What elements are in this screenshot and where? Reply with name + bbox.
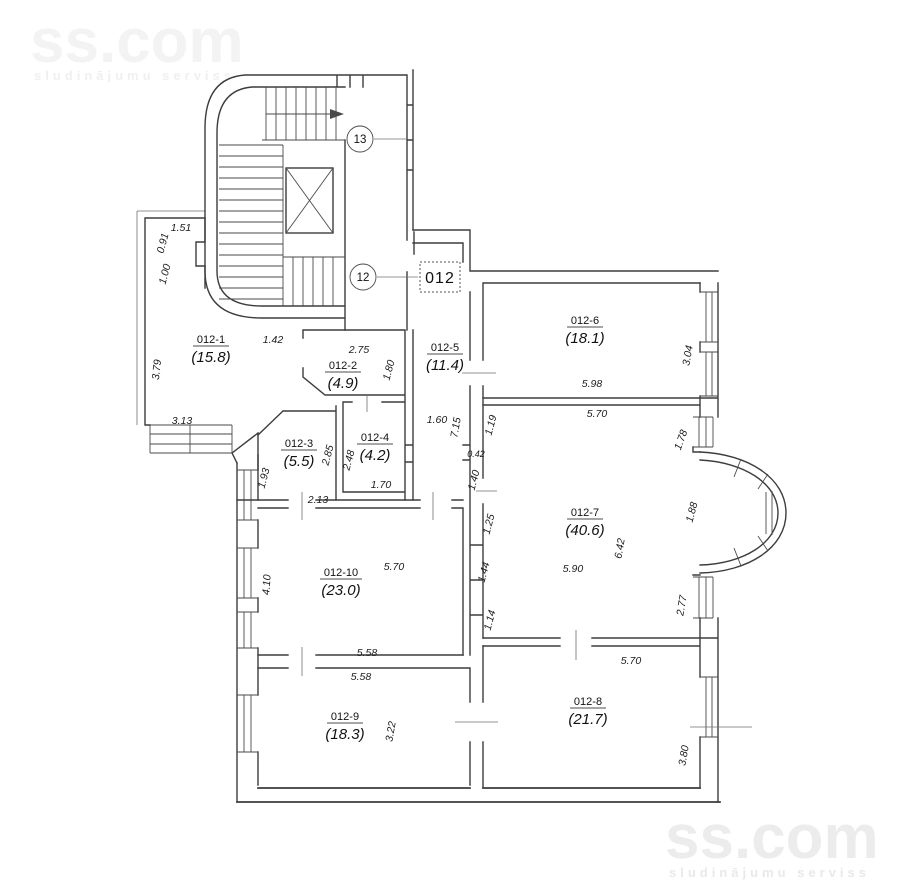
dimension-label: 3.13 bbox=[172, 415, 193, 427]
staircase bbox=[205, 70, 414, 330]
room-area: (15.8) bbox=[191, 349, 230, 366]
dimension-label: 3.22 bbox=[383, 720, 398, 742]
elevator-shaft bbox=[286, 168, 333, 233]
unit-number: 012 bbox=[425, 270, 455, 287]
room-area: (4.2) bbox=[360, 447, 391, 464]
dimension-label: 6.42 bbox=[612, 537, 627, 559]
dimension-label: 1.42 bbox=[263, 334, 284, 346]
floor-plan: ss.com sludinājumu serviss ss.com sludin… bbox=[0, 0, 910, 887]
window bbox=[150, 425, 232, 453]
floor-13-text: 13 bbox=[354, 134, 367, 146]
dimension-label: 5.70 bbox=[621, 655, 642, 667]
stair-treads bbox=[219, 87, 345, 306]
elevator-cross bbox=[286, 168, 333, 233]
room-id: 012-5 bbox=[431, 342, 459, 354]
room-area: (18.3) bbox=[325, 726, 364, 743]
room-id: 012-8 bbox=[574, 696, 602, 708]
dimension-label: 2.75 bbox=[348, 344, 370, 356]
dimension-label: 1.44 bbox=[476, 561, 493, 584]
floor-12-text: 12 bbox=[357, 272, 370, 284]
room-id: 012-2 bbox=[329, 360, 357, 372]
outer-wall-bottom bbox=[237, 788, 720, 802]
watermark-tagline: sludinājumu serviss bbox=[669, 865, 870, 880]
dimension-label: 5.98 bbox=[582, 378, 603, 390]
room-id: 012-9 bbox=[331, 711, 359, 723]
dimension-label: 5.58 bbox=[351, 671, 372, 683]
window bbox=[237, 470, 258, 752]
room-id: 012-7 bbox=[571, 507, 599, 519]
room-area: (4.9) bbox=[328, 375, 359, 392]
room-id: 012-4 bbox=[361, 432, 389, 444]
dimension-label: 3.79 bbox=[150, 359, 164, 381]
outer-wall-left bbox=[237, 455, 258, 802]
dimension-label: 1.14 bbox=[482, 609, 499, 632]
dimension-label: 0.91 bbox=[155, 232, 172, 255]
room-012-7-label: 012-7 (40.6) bbox=[565, 507, 604, 539]
room-labels: 012-1 (15.8) 012-2 (4.9) 012-3 (5.5) 012… bbox=[191, 315, 607, 743]
dimension-label: 1.88 bbox=[684, 501, 701, 524]
room-area: (23.0) bbox=[321, 582, 360, 599]
room-012-9-label: 012-9 (18.3) bbox=[325, 711, 364, 743]
dimension-label: 1.00 bbox=[157, 263, 174, 286]
room-012-3-label: 012-3 (5.5) bbox=[281, 438, 317, 470]
stairs-up-arrow-head bbox=[330, 109, 344, 119]
floor-13-marker: 13 bbox=[347, 126, 407, 152]
dimension-label: 1.78 bbox=[672, 428, 690, 451]
room-012-8-label: 012-8 (21.7) bbox=[568, 696, 607, 728]
watermark-brand: ss.com bbox=[30, 7, 244, 76]
room-012-1-label: 012-1 (15.8) bbox=[191, 334, 230, 366]
hall-walls bbox=[413, 230, 718, 655]
dimension-label: 7.15 bbox=[448, 416, 463, 438]
room-012-2-label: 012-2 (4.9) bbox=[325, 360, 361, 392]
room-area: (18.1) bbox=[565, 330, 604, 347]
bay-window bbox=[700, 452, 786, 573]
floor-plan-page: ss.com sludinājumu serviss ss.com sludin… bbox=[0, 0, 910, 887]
dimension-label: 2.77 bbox=[674, 593, 690, 617]
dimension-label: 2.13 bbox=[307, 494, 329, 506]
room-area: (11.4) bbox=[426, 357, 464, 374]
bay-walls bbox=[700, 452, 786, 573]
dimension-label: 3.80 bbox=[676, 744, 691, 766]
dimension-label: 0.42 bbox=[467, 449, 485, 459]
room-area: (40.6) bbox=[565, 522, 604, 539]
dimension-label: 1.19 bbox=[483, 414, 500, 437]
wall-012-9-top bbox=[258, 646, 483, 788]
dimension-label: 1.80 bbox=[381, 359, 398, 382]
dimension-label: 5.70 bbox=[587, 408, 608, 420]
dimension-label: 5.70 bbox=[384, 561, 405, 573]
room-area: (5.5) bbox=[284, 453, 315, 470]
watermark-bottom-right: ss.com sludinājumu serviss bbox=[665, 803, 879, 880]
room-id: 012-3 bbox=[285, 438, 313, 450]
room-012-10-label: 012-10 (23.0) bbox=[320, 567, 362, 599]
watermark-tagline: sludinājumu serviss bbox=[34, 68, 235, 83]
dimension-label: 1.40 bbox=[466, 469, 483, 492]
unit-label-box: 012 bbox=[420, 262, 460, 292]
room-area: (21.7) bbox=[568, 711, 607, 728]
dimension-labels: 1.51 0.91 1.00 3.79 3.13 1.42 2.75 1.80 … bbox=[150, 222, 701, 767]
dimension-label: 4.10 bbox=[260, 574, 273, 595]
floor-12-marker: 12 bbox=[350, 264, 418, 290]
inner-walls-center bbox=[258, 330, 413, 500]
watermark-top-left: ss.com sludinājumu serviss bbox=[30, 7, 244, 83]
dimension-label: 1.70 bbox=[371, 479, 392, 491]
dimension-label: 3.04 bbox=[680, 344, 695, 366]
watermark-brand: ss.com bbox=[665, 803, 879, 872]
dimension-label: 5.90 bbox=[563, 563, 584, 575]
boundary-line bbox=[137, 211, 205, 425]
dimension-label: 2.85 bbox=[319, 444, 336, 468]
dimension-label: 1.51 bbox=[171, 222, 191, 234]
room-012-5-label: 012-5 (11.4) bbox=[426, 342, 464, 374]
room-id: 012-6 bbox=[571, 315, 599, 327]
room-id: 012-1 bbox=[197, 334, 225, 346]
dimension-label: 1.60 bbox=[427, 414, 448, 426]
room-012-4-label: 012-4 (4.2) bbox=[357, 432, 393, 464]
room-id: 012-10 bbox=[324, 567, 358, 579]
dimension-label: 5.58 bbox=[357, 647, 378, 659]
room-012-6-label: 012-6 (18.1) bbox=[565, 315, 604, 347]
